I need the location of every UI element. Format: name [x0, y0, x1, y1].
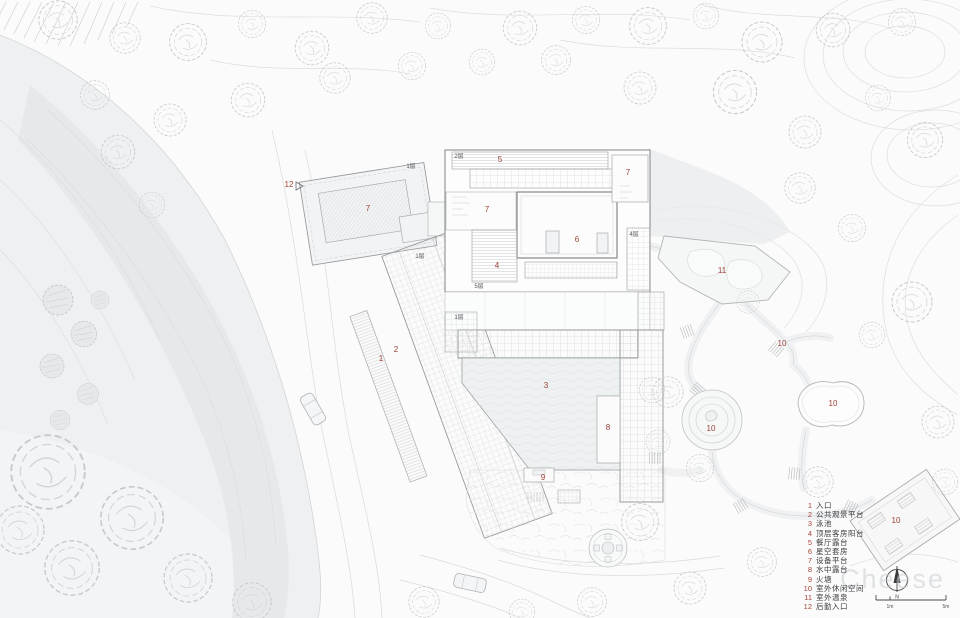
svg-text:1m: 1m — [887, 604, 894, 610]
svg-text:5m: 5m — [943, 604, 950, 610]
site-plan-page: N 1m 5m Cheese 1 2 3 4 5 6 7 7 7 8 9 10 … — [0, 0, 960, 618]
fire-seating — [589, 529, 627, 567]
stone-circle — [682, 390, 742, 450]
main-building — [445, 150, 664, 330]
site-plan-drawing: N 1m 5m — [0, 0, 960, 618]
organic-pool — [798, 382, 864, 427]
